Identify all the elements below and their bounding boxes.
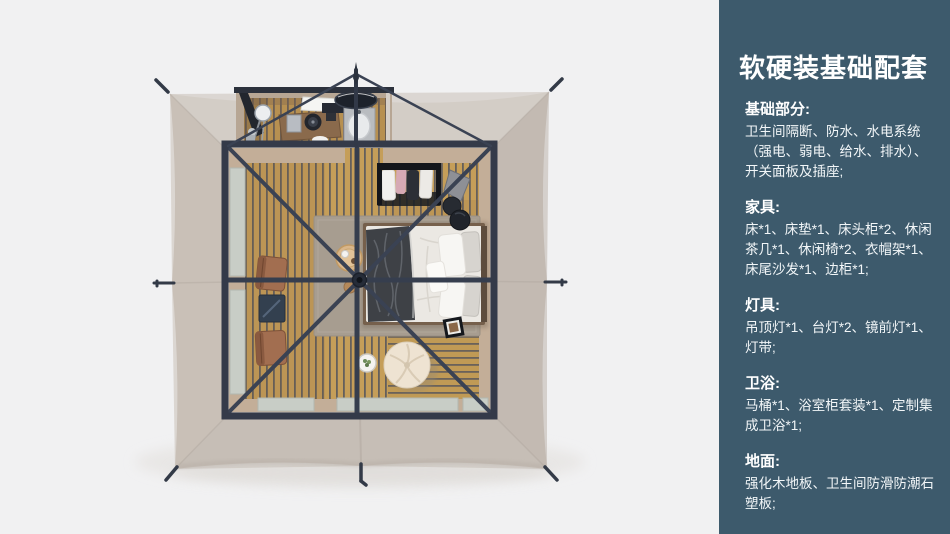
- section-bathroom-body: 马桶*1、浴室柜套装*1、定制集成卫浴*1;: [745, 396, 935, 436]
- bed: [362, 222, 488, 328]
- lounge-chair-1: [255, 256, 287, 292]
- section-furniture-heading: 家具:: [745, 198, 935, 218]
- section-flooring-body: 强化木地板、卫生间防滑防潮石塑板;: [745, 474, 935, 514]
- section-bathroom-heading: 卫浴:: [745, 374, 935, 394]
- section-bathroom: 卫浴: 马桶*1、浴室柜套装*1、定制集成卫浴*1;: [745, 374, 935, 436]
- section-flooring: 地面: 强化木地板、卫生间防滑防潮石塑板;: [745, 452, 935, 514]
- dark-throw-blanket: [366, 226, 415, 322]
- section-lighting-heading: 灯具:: [745, 296, 935, 316]
- clothes-rack: [377, 163, 441, 206]
- bathroom-doorway: [345, 148, 383, 164]
- section-furniture: 家具: 床*1、床垫*1、床头柜*2、休闲茶几*1、休闲椅*2、衣帽架*1、床尾…: [745, 198, 935, 280]
- center-hub: [353, 273, 367, 287]
- annex-top-frame: [234, 87, 394, 93]
- sink-basin: [348, 113, 370, 139]
- panel-title: 软硬装基础配套: [739, 52, 950, 85]
- side-table: [358, 354, 376, 372]
- coffee-machine: [287, 115, 301, 132]
- garment-pink: [396, 168, 407, 194]
- section-lighting: 灯具: 吊顶灯*1、台灯*2、镜前灯*1、灯带;: [745, 296, 935, 358]
- section-basics-body: 卫生间隔断、防水、水电系统（强电、弱电、给水、排水）、开关面板及插座;: [745, 122, 935, 182]
- chairs-side-table: [259, 295, 285, 322]
- spec-sections: 基础部分: 卫生间隔断、防水、水电系统（强电、弱电、给水、排水）、开关面板及插座…: [739, 100, 935, 514]
- tent-top-view-render: [0, 0, 719, 534]
- section-furniture-body: 床*1、床垫*1、床头柜*2、休闲茶几*1、休闲椅*2、衣帽架*1、床尾沙发*1…: [745, 220, 935, 280]
- bathroom-annex: [234, 87, 394, 147]
- rack-bar: [377, 163, 441, 170]
- section-flooring-heading: 地面:: [745, 452, 935, 472]
- garment-dark: [407, 170, 419, 200]
- section-basics-heading: 基础部分:: [745, 100, 935, 120]
- headboard: [481, 226, 487, 322]
- page: 软硬装基础配套 基础部分: 卫生间隔断、防水、水电系统（强电、弱电、给水、排水）…: [0, 0, 950, 534]
- section-lighting-body: 吊顶灯*1、台灯*2、镜前灯*1、灯带;: [745, 318, 935, 358]
- framed-tray: [443, 316, 465, 338]
- vanity-desk: [279, 111, 341, 141]
- garment-white: [381, 170, 395, 200]
- garment-white-2: [419, 168, 433, 199]
- section-basics: 基础部分: 卫生间隔断、防水、水电系统（强电、弱电、给水、排水）、开关面板及插座…: [745, 100, 935, 182]
- spec-panel: 软硬装基础配套 基础部分: 卫生间隔断、防水、水电系统（强电、弱电、给水、排水）…: [719, 0, 950, 534]
